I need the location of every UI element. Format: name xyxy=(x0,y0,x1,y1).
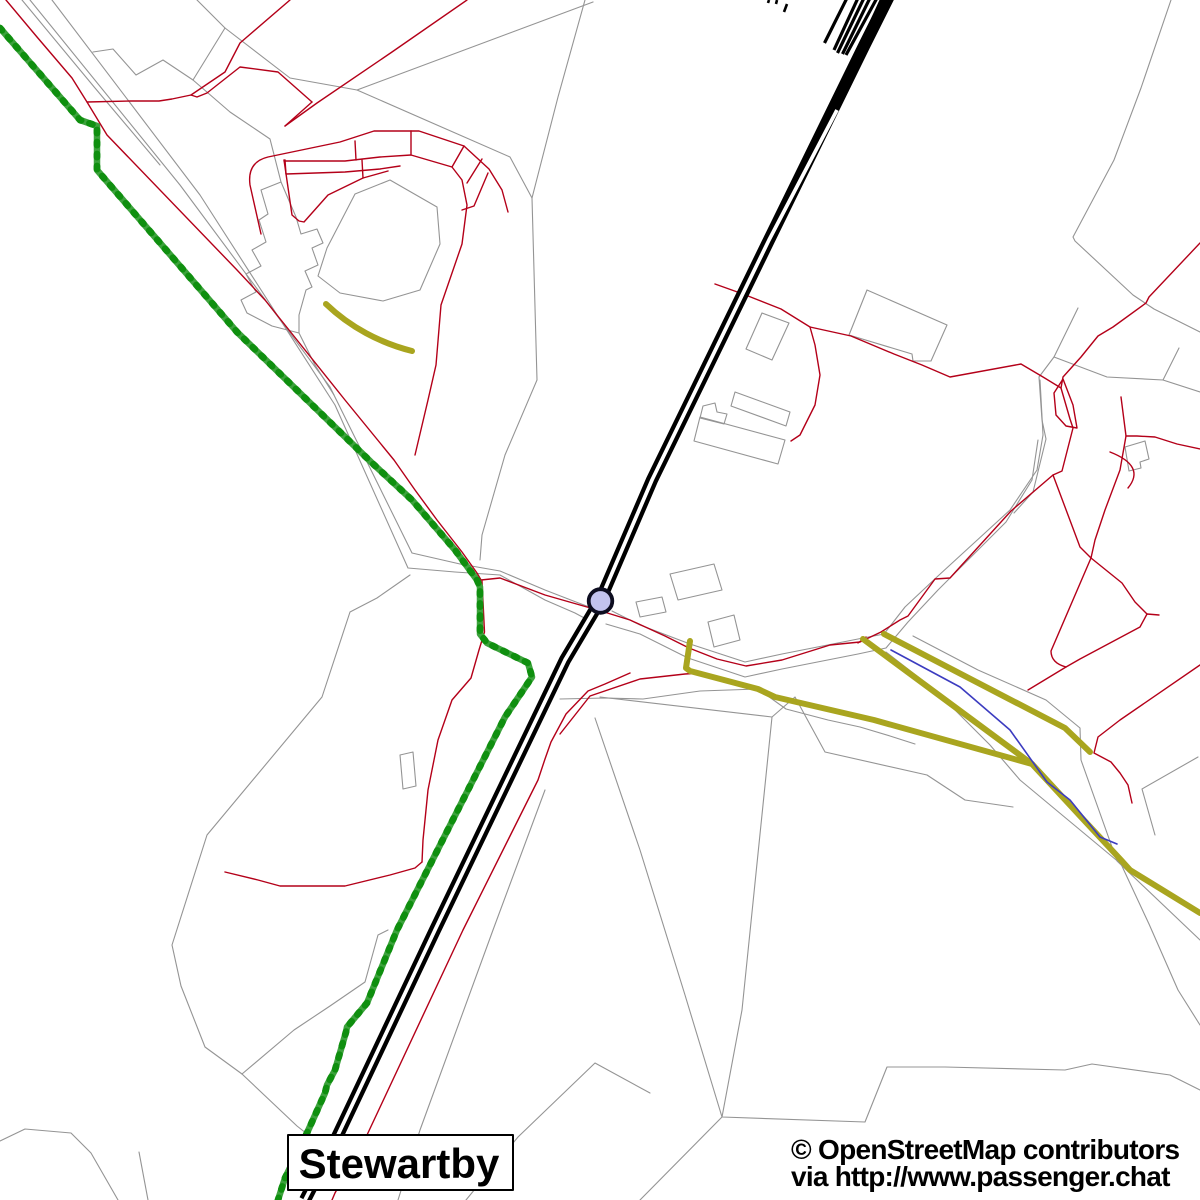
svg-text:Stewartby: Stewartby xyxy=(299,1140,500,1187)
svg-text:via http://www.passenger.chat: via http://www.passenger.chat xyxy=(791,1161,1170,1192)
